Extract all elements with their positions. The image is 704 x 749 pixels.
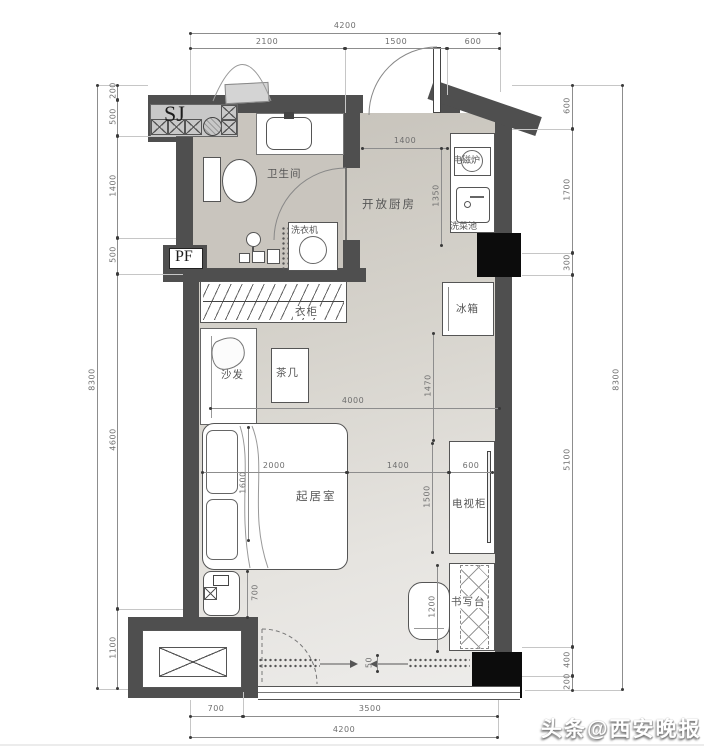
dim-bed-gap [247, 571, 248, 618]
dim-label: 500 [109, 235, 118, 275]
dim-label: 3500 [350, 704, 390, 713]
basin-faucet [284, 112, 294, 119]
ext-line [512, 129, 572, 130]
sj-label: SJ [164, 101, 185, 127]
dim-label: 1500 [423, 477, 432, 517]
dim-tv-w [449, 472, 493, 473]
ext-line [243, 692, 244, 716]
sj-cell-3 [185, 119, 202, 135]
dim-top-overall [190, 33, 500, 34]
dim-bottom-a [190, 716, 243, 717]
ext-line [190, 700, 191, 737]
ext-line [97, 689, 128, 690]
dim-living-w [210, 408, 500, 409]
entrance-door-leaf [433, 47, 441, 113]
dim-label: 4000 [333, 396, 373, 405]
dim-bed-l [248, 427, 249, 541]
dim-top-a [190, 48, 345, 49]
entrance-door-arc [369, 47, 437, 115]
dim-label: 5100 [563, 440, 572, 480]
dim-left-overall [97, 85, 98, 689]
pillow-2 [206, 499, 238, 560]
bottom-edge-line [0, 744, 704, 746]
pf-label: PF [175, 248, 193, 266]
dim-label: 8300 [88, 360, 97, 400]
desk-label: 书写台 [450, 596, 487, 608]
ext-line [345, 48, 346, 113]
living-label: 起居室 [296, 491, 337, 504]
sj-hatched-circle [203, 117, 222, 136]
dim-label: 600 [563, 86, 572, 126]
fridge-door-line [448, 287, 449, 331]
dim-label: 500 [109, 97, 118, 137]
sofa-label: 沙发 [221, 369, 244, 381]
dim-label: 1600 [239, 463, 248, 503]
sofa-back-line [211, 336, 212, 418]
dim-label: 1500 [376, 37, 416, 46]
dim-label: 600 [453, 37, 493, 46]
sink-drain [464, 201, 471, 208]
dim-right-b [572, 129, 573, 253]
sj-cell-5 [221, 120, 237, 135]
dim-label: 1400 [385, 136, 425, 145]
dim-label: 1470 [424, 366, 433, 406]
bathroom-label: 卫生间 [267, 168, 302, 180]
wall-corner-fill [495, 112, 512, 124]
floor-plan: SJ PF 卫生间 洗衣机 开放厨房 电磁炉 洗菜池 冰箱 衣柜 沙发 茶几 起… [0, 0, 704, 749]
dim-right-e [572, 647, 573, 676]
dim-top-b [345, 48, 447, 49]
wardrobe-label: 衣柜 [293, 306, 320, 318]
dim-mid-b [347, 472, 449, 473]
sj-window-leaf [225, 82, 270, 104]
dim-label: 4200 [325, 21, 365, 30]
ext-line [97, 85, 148, 86]
bath-hatch-strip [281, 226, 288, 270]
balcony-glazing [258, 686, 520, 700]
bath-fixture-round [246, 232, 261, 247]
dim-label: 300 [563, 243, 572, 283]
bath-fixture-3 [267, 249, 280, 264]
nightstand-lamp [213, 575, 229, 586]
dim-bottom-b [243, 716, 498, 717]
dim-track [377, 655, 378, 672]
toilet-bowl [222, 159, 257, 203]
cooktop-label: 电磁炉 [453, 155, 480, 165]
sink-label: 洗菜池 [450, 221, 477, 231]
wall-left-living [183, 282, 199, 622]
dim-label: 1700 [563, 170, 572, 210]
ext-line [117, 136, 176, 137]
sink-faucet [470, 196, 484, 198]
washer-label: 洗衣机 [291, 225, 318, 235]
dim-top-c [447, 48, 500, 49]
bath-fixture-1 [239, 253, 250, 263]
dim-label: 700 [251, 573, 260, 613]
dim-desk-l [437, 565, 438, 652]
dim-label: 2000 [254, 461, 294, 470]
bath-fixture-2 [252, 251, 265, 263]
dim-label: 1200 [428, 587, 437, 627]
dim-right-overall [622, 85, 623, 690]
balcony-glazing-mid [258, 692, 520, 693]
ext-line [190, 33, 191, 95]
ext-line [117, 274, 183, 275]
dim-label: 1400 [109, 166, 118, 206]
dim-right-mid [433, 333, 434, 441]
dim-label: 4600 [109, 420, 118, 460]
wall-right [495, 120, 512, 655]
ext-line [500, 33, 501, 92]
dim-label: 1100 [109, 628, 118, 668]
sj-cell-4 [221, 105, 237, 120]
tv-cabinet-label: 电视柜 [452, 498, 487, 510]
ext-line [498, 700, 499, 737]
curtain-left [258, 657, 320, 670]
chair-line [414, 628, 444, 629]
dim-kitchen-w [362, 148, 448, 149]
dim-bottom-overall [190, 737, 498, 738]
wall-bath-right-upper [343, 113, 360, 168]
shaft-cross [159, 647, 227, 677]
dim-label: 50 [365, 643, 374, 683]
wardrobe-rod [203, 301, 344, 302]
dim-right-c [572, 253, 573, 275]
dim-label: 1400 [378, 461, 418, 470]
pillow-1 [206, 430, 238, 494]
nightstand-switch [204, 587, 217, 600]
kitchen-label: 开放厨房 [362, 199, 416, 212]
dim-tv-l [432, 443, 433, 553]
dim-right-a [572, 85, 573, 129]
basin [266, 117, 312, 150]
curtain-right [408, 657, 470, 670]
dim-right-d [572, 275, 573, 647]
ext-line [447, 48, 448, 95]
ext-line [117, 238, 176, 239]
dim-label: 4200 [324, 725, 364, 734]
wardrobe-hangers [203, 284, 344, 320]
kitchen-sink [456, 187, 490, 223]
dim-bed-w [202, 472, 347, 473]
dim-kitchen-d [441, 148, 442, 246]
washer-drum [299, 236, 327, 264]
ext-line [117, 609, 183, 610]
dim-right-f [572, 676, 573, 691]
dim-label: 700 [196, 704, 236, 713]
fridge-label: 冰箱 [456, 303, 479, 315]
column-right [477, 233, 521, 277]
dim-label: 2100 [247, 37, 287, 46]
dim-label: 8300 [612, 360, 621, 400]
watermark: 头条@西安晚报 [541, 713, 701, 743]
dim-label: 1350 [432, 176, 441, 216]
toilet-tank [203, 157, 221, 202]
tea-table-label: 茶几 [276, 367, 299, 379]
dim-label: 200 [563, 662, 572, 702]
dim-label: 600 [451, 461, 491, 470]
